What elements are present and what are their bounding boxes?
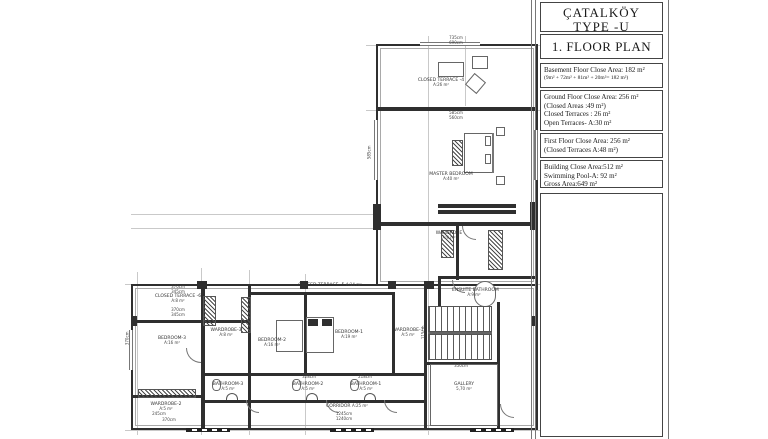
panel-border-line [535, 0, 536, 439]
dim-value: 345cm [156, 313, 200, 318]
room-label-closed-terrace-5: CLOSED TERRACE -5 A:14 m² [280, 283, 380, 288]
scale-bar [470, 428, 514, 432]
closet-bar [438, 204, 516, 208]
wardrobe2-closet [138, 389, 196, 398]
first-floor-area-line: First Floor Close Area: 256 m² [541, 137, 662, 146]
terrace-table [438, 62, 464, 77]
nightstand [496, 127, 505, 136]
panel-border-line [668, 0, 669, 439]
column [388, 281, 396, 289]
sink [306, 393, 318, 400]
wall-ensuite-top [438, 276, 538, 279]
room-label-wardrobe-2: WARDROBE-2 A:5 m² [142, 402, 190, 412]
room-area: A:5 m² [206, 387, 250, 392]
closet-bar [438, 210, 516, 214]
wall-terrace5-bottom [248, 292, 395, 295]
scale-bar [330, 428, 374, 432]
dim-label: 585cm 560cm [432, 111, 480, 120]
stair-rail [428, 332, 492, 334]
building-area-box: Building Close Area:512 m² Swimming Pool… [540, 160, 663, 188]
column [131, 316, 137, 326]
room-label-closed-terrace-6: CLOSED TERRACE -6 A:8 m² [148, 294, 208, 304]
dim-value: 1240cm [318, 417, 370, 422]
gross-area-line: Gross Area:649 m² [541, 180, 662, 189]
dim-value: 690cm [432, 41, 480, 46]
room-label-ensuite-bathroom: ENSUITE BATHROOM A:9 m² [452, 288, 496, 298]
room-area: A:16 m² [148, 341, 196, 346]
stair-flight [428, 334, 492, 360]
room-area: A:9 m² [430, 236, 468, 241]
room-label-bedroom-1: BEDROOM-1 A:19 m² [326, 330, 372, 340]
dim-label: 218cm [350, 375, 380, 380]
extension-line [131, 228, 377, 229]
dim-label: 370cm 345cm [156, 308, 200, 317]
room-label-closed-terrace-4: CLOSED TERRACE -4 A:26 m² [408, 78, 474, 88]
room-name: CORRIDOR [326, 404, 350, 409]
dim-label: 370cm [156, 418, 182, 423]
type-title: TYPE -U [541, 21, 662, 33]
column [424, 281, 434, 289]
pillow-dark [322, 319, 332, 326]
plan-title: 1. FLOOR PLAN [552, 39, 651, 55]
dim-label: 245cm [146, 412, 172, 417]
room-label-corridor: CORRIDOR A:25 m² [300, 404, 394, 409]
room-area: 5,70 m² [446, 387, 482, 392]
room-label-wardrobe-3: WARDROBE-3 A:8 m² [206, 328, 246, 338]
dim-label: 350cm [446, 364, 476, 369]
dim-label: 328cm [294, 375, 324, 380]
dim-label: 370cm [126, 326, 131, 350]
pillow [485, 136, 491, 146]
swimming-pool-line: Swimming Pool-A: 92 m² [541, 172, 662, 181]
room-area: A:19 m² [326, 335, 372, 340]
room-label-bedroom-2: BEDROOM-2 A:16 m² [252, 338, 292, 348]
room-area: A:25 m² [352, 403, 368, 408]
room-label-bedroom-3: BEDROOM-3 A:16 m² [148, 336, 196, 346]
stair-flight [428, 306, 492, 332]
sink [364, 393, 376, 400]
wall-stair-left [424, 284, 427, 430]
plan-title-box: 1. FLOOR PLAN [540, 34, 663, 59]
room-name: CLOSED TERRACE -5 [298, 283, 344, 288]
room-area: A:26 m² [408, 83, 474, 88]
window [374, 120, 378, 180]
room-area: A:5 m² [286, 387, 330, 392]
extension-line [131, 214, 377, 215]
sink [226, 393, 238, 400]
room-area: A:14 m² [346, 282, 362, 287]
pillow-dark [308, 319, 318, 326]
basement-area-line: Basement Floor Close Area: 182 m² [541, 66, 662, 75]
dim-value: 345cm [156, 290, 200, 295]
master-bed-headboard [492, 133, 494, 173]
basement-area-breakdown: (9m² + 72m² + 81m² + 20m²= 182 m²) [541, 75, 662, 82]
ground-open-terraces-line: Open Terraces- A:30 m² [541, 119, 662, 128]
ground-closed-areas-line: (Closed Areas :49 m²) [541, 102, 662, 111]
title-box: ÇATALKÖY TYPE -U VILLA 25 [540, 2, 663, 32]
room-area: A:8 m² [148, 299, 208, 304]
drawing-sheet: CLOSED TERRACE -4 A:26 m² MASTER BEDROOM… [0, 0, 768, 439]
nightstand [496, 176, 505, 185]
basement-area-box: Basement Floor Close Area: 182 m² (9m² +… [540, 63, 663, 88]
ground-area-box: Ground Floor Close Area: 256 m² (Closed … [540, 90, 663, 131]
room-label-bathroom-2: BATHROOM-2 A:5 m² [286, 382, 330, 392]
room-area: A:9 m² [452, 293, 496, 298]
ground-closed-terraces-line: Closed Terraces : 26 m² [541, 110, 662, 119]
wall-terrace6-bottom [131, 320, 251, 323]
room-label-wardrobe: WARDROBE A:9 m² [430, 231, 468, 241]
room-area: A:8 m² [206, 333, 246, 338]
pillow [485, 154, 491, 164]
scale-bar [186, 428, 230, 432]
dresser [452, 140, 463, 166]
room-label-master-bedroom: MASTER BEDROOM A:40 m² [426, 172, 476, 182]
dim-label: 1245cm 1240cm [318, 412, 370, 421]
dim-label: 735cm 690cm [432, 36, 480, 45]
dim-label: 370cm 345cm [156, 285, 200, 294]
ground-area-line: Ground Floor Close Area: 256 m² [541, 93, 662, 102]
building-close-area-line: Building Close Area:512 m² [541, 163, 662, 172]
room-area: A:40 m² [426, 177, 476, 182]
column [373, 204, 381, 230]
first-floor-terraces-line: (Closed Terraces A:48 m²) [541, 146, 662, 155]
wall-ensuite-left [438, 276, 441, 306]
room-label-bathroom-3: BATHROOM-3 A:5 m² [206, 382, 250, 392]
wardrobe-closet [488, 230, 503, 270]
dim-label: 585cm [368, 140, 373, 164]
room-label-bathroom-1: BATHROOM-1 A:5 m² [344, 382, 388, 392]
first-floor-area-box: First Floor Close Area: 256 m² (Closed T… [540, 133, 663, 158]
dim-value: 560cm [432, 116, 480, 121]
dim-label: 115cm [422, 320, 427, 344]
room-area: A:5 m² [344, 387, 388, 392]
empty-box [540, 193, 663, 437]
panel-border-line [531, 0, 532, 439]
room-label-gallery: GALLERY 5,70 m² [446, 382, 482, 392]
room-area: A:16 m² [252, 343, 292, 348]
terrace-chair [472, 56, 488, 69]
gallery-opening [430, 364, 498, 426]
